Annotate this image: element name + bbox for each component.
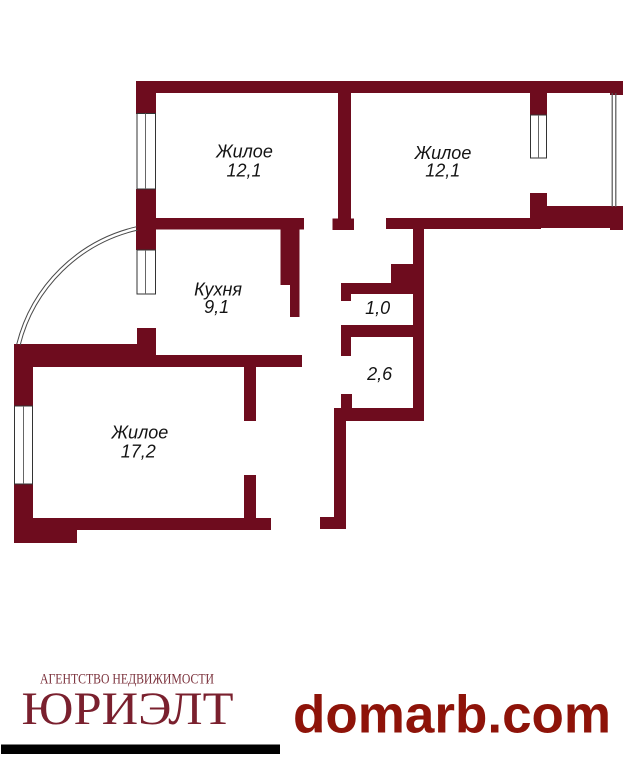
svg-text:2,6: 2,6 bbox=[366, 364, 393, 384]
svg-text:12,1: 12,1 bbox=[425, 160, 460, 180]
svg-text:1,0: 1,0 bbox=[365, 298, 390, 318]
svg-text:9,1: 9,1 bbox=[204, 297, 229, 317]
svg-text:17,2: 17,2 bbox=[121, 442, 156, 462]
svg-text:domarb.com: domarb.com bbox=[293, 686, 611, 745]
svg-text:ЮРИЭЛТ: ЮРИЭЛТ bbox=[22, 683, 234, 735]
svg-text:Жилое: Жилое bbox=[215, 142, 273, 162]
svg-text:12,1: 12,1 bbox=[226, 160, 261, 180]
svg-text:Жилое: Жилое bbox=[111, 423, 169, 443]
